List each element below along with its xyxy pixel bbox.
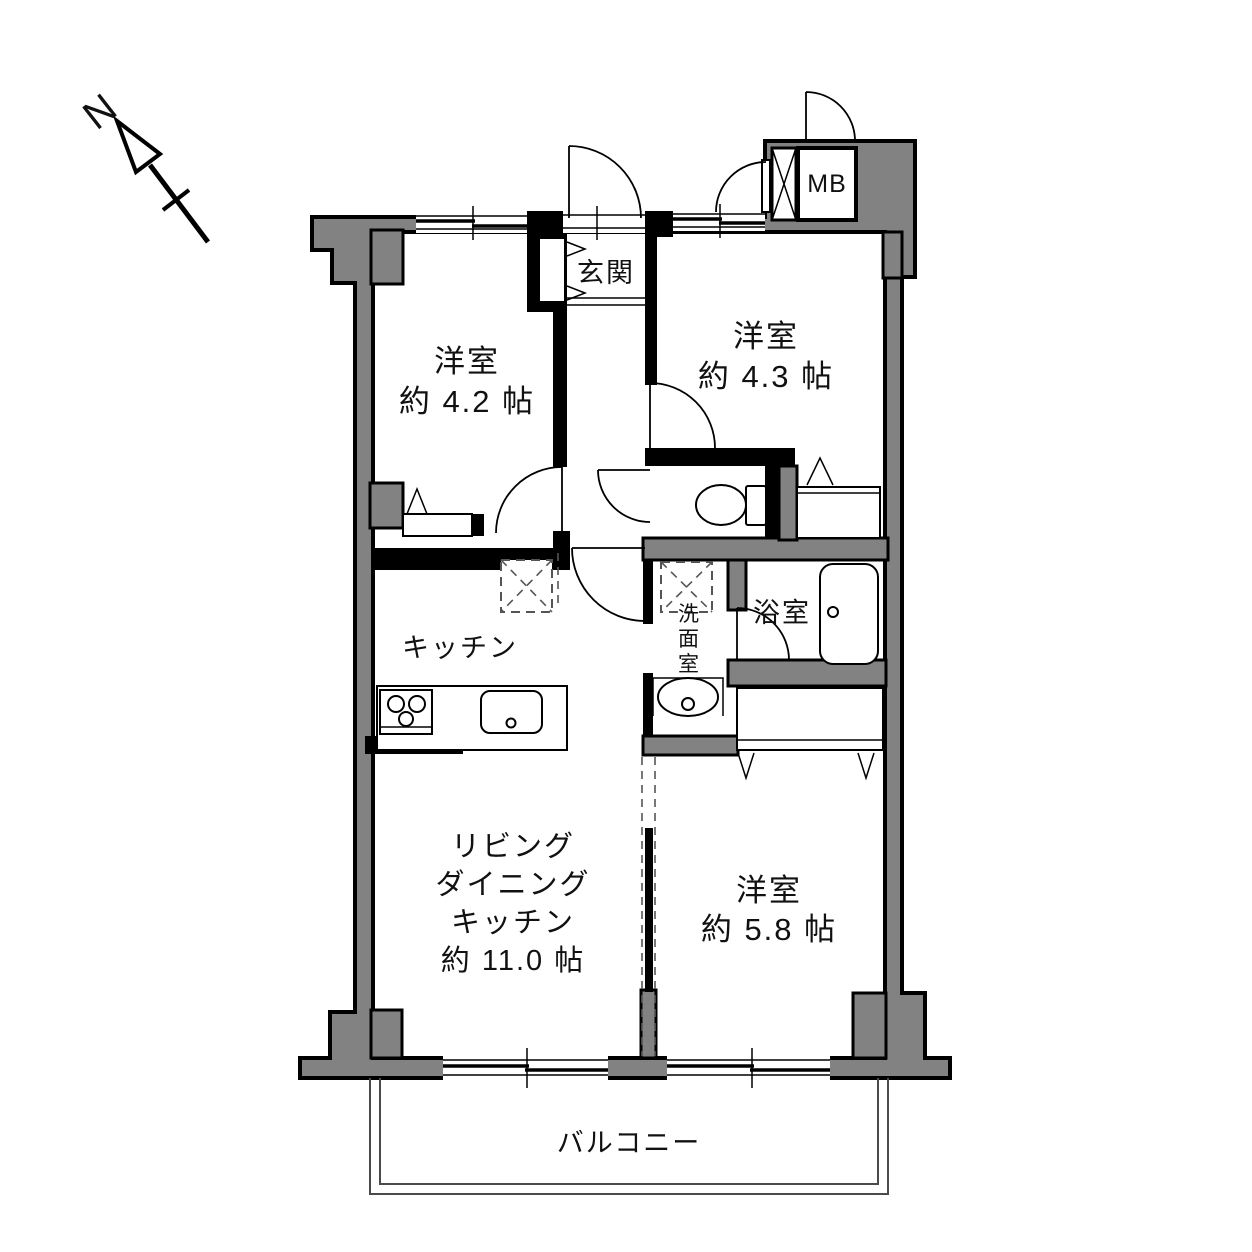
label-balcony: バルコニー: [557, 1128, 701, 1158]
wall-hall-west-upper: [553, 312, 567, 467]
wall-step-top-right: [883, 232, 902, 278]
svg-text:リビング: リビング: [451, 830, 575, 863]
room-area: 約 5.8 帖: [701, 912, 837, 947]
wall-washroom-west-upper: [643, 560, 653, 624]
room-name: 洋室: [733, 319, 799, 354]
floor-plan-page: N MB: [0, 0, 1252, 1252]
wall-washroom-south: [643, 736, 738, 755]
meter-box: MB: [798, 148, 856, 220]
bathtub-icon: [820, 564, 878, 664]
wall-bath-north: [643, 538, 888, 560]
label-washroom: 洗 面 室: [678, 603, 700, 676]
room-name: 洋室: [434, 344, 500, 379]
room-area: 約 4.2 帖: [399, 384, 535, 419]
wall-bedroom-ne-south: [645, 448, 795, 466]
room-name: 洋室: [736, 873, 802, 908]
wall-entrance-left-stub: [527, 211, 563, 235]
pillar-toilet-east: [779, 466, 797, 540]
kitchen-sink-icon: [481, 691, 542, 733]
pillar-bottom-left: [371, 1010, 402, 1058]
pillar-mid-left: [370, 483, 403, 528]
label-bathroom: 浴室: [753, 598, 811, 628]
meter-box-label: MB: [807, 170, 847, 198]
svg-text:室: 室: [678, 653, 700, 676]
svg-text:洗: 洗: [678, 603, 700, 626]
refrigerator-space-icon: [501, 560, 552, 612]
wall-bath-west: [728, 560, 746, 610]
pillar-top-left: [371, 230, 403, 284]
svg-text:面: 面: [678, 628, 700, 651]
pillar-bottom-right: [853, 993, 886, 1058]
svg-text:キッチン: キッチン: [451, 907, 575, 939]
wall-hall-east: [645, 232, 657, 385]
label-entrance: 玄関: [577, 258, 635, 288]
wall-washroom-west-lower: [643, 673, 653, 736]
svg-text:約 11.0 帖: 約 11.0 帖: [441, 944, 585, 977]
toilet-icon: [696, 485, 766, 525]
wall-toilet-east: [765, 466, 779, 542]
pillar-bottom-center: [641, 990, 656, 1058]
pipe-shaft-icon: [772, 148, 796, 220]
stove-icon: [380, 690, 432, 734]
floor-plan-drawing: N MB: [0, 0, 1252, 1252]
room-area: 約 4.3 帖: [698, 359, 834, 394]
label-kitchen: キッチン: [402, 633, 518, 663]
wall-closet-nw-stub: [472, 514, 484, 536]
svg-text:ダイニング: ダイニング: [435, 868, 590, 901]
